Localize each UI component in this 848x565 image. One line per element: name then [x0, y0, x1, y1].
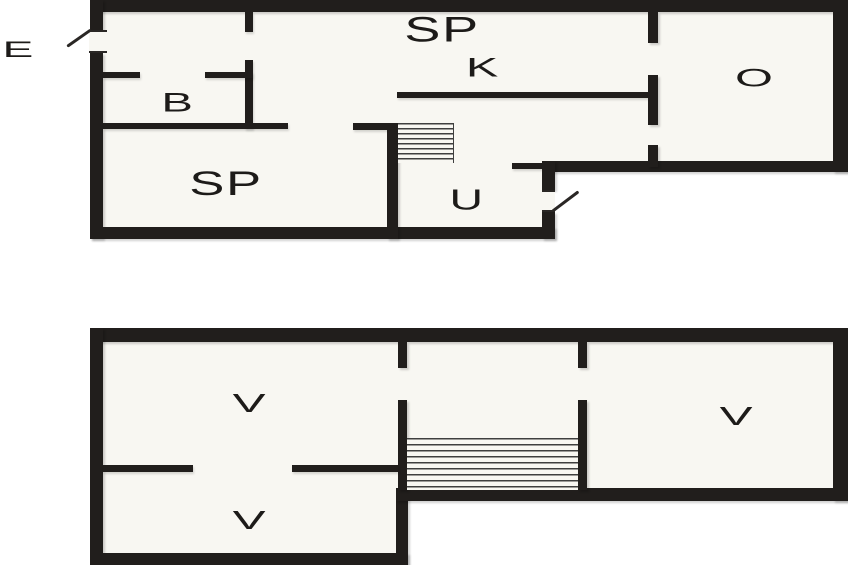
upper-floor-fill-main	[90, 0, 555, 239]
lower-step-wall	[396, 490, 408, 565]
room-label-sp-lower: SP	[189, 167, 262, 201]
o-room-wall-top	[648, 12, 658, 43]
room-label-u: U	[449, 187, 484, 216]
lower-staircase	[407, 438, 578, 490]
lower-bottom-wall-left	[90, 553, 408, 565]
stairwell-left-wall-top	[398, 342, 407, 368]
entrance-door-opening	[89, 30, 107, 53]
floor-plan-canvas: E B SP K O SP U V V V	[0, 0, 848, 565]
o-room-wall-bottom	[648, 145, 658, 167]
o-room-wall-middle	[648, 75, 658, 125]
stairwell-left-wall-bottom	[398, 400, 407, 490]
u-room-door-swing-line	[551, 190, 579, 212]
room-label-v-top-left: V	[233, 390, 268, 416]
kitchen-wall	[397, 92, 652, 98]
b-room-wall-vertical-top	[245, 12, 253, 32]
upper-staircase	[398, 123, 454, 163]
b-room-wall-vertical-bottom	[245, 60, 253, 129]
room-label-k: K	[466, 55, 500, 82]
room-label-o: O	[735, 67, 775, 92]
left-rooms-divider-left	[103, 465, 193, 472]
upper-bottom-wall-main	[90, 227, 555, 239]
stairwell-right-wall-top	[578, 342, 587, 368]
upper-left-wall-above-door	[90, 0, 103, 30]
sp-room-top-wall	[103, 123, 288, 129]
upper-right-wall	[833, 0, 848, 172]
room-label-sp-top: SP	[404, 13, 479, 48]
lower-left-wall	[90, 328, 103, 565]
right-wing-bottom-wall-stub	[512, 163, 542, 169]
lower-right-wall	[833, 328, 848, 501]
upper-stair-side-wall	[387, 123, 398, 239]
left-rooms-divider-right	[292, 465, 398, 472]
b-room-wall-horizontal-left	[103, 72, 140, 78]
u-room-right-wall-bottom	[542, 212, 555, 239]
room-label-e: E	[3, 39, 36, 61]
u-room-right-wall-top	[542, 161, 555, 190]
room-label-v-right: V	[720, 403, 755, 429]
right-wing-bottom-wall	[542, 161, 848, 172]
b-room-wall-horizontal-right	[205, 72, 253, 78]
upper-left-wall-below-door	[90, 53, 103, 239]
entrance-door-swing-line	[66, 29, 91, 48]
room-label-v-bottom-left: V	[233, 507, 268, 533]
room-label-b: B	[161, 90, 194, 117]
lower-top-wall	[90, 328, 848, 342]
stairwell-right-wall-bottom	[578, 400, 587, 490]
